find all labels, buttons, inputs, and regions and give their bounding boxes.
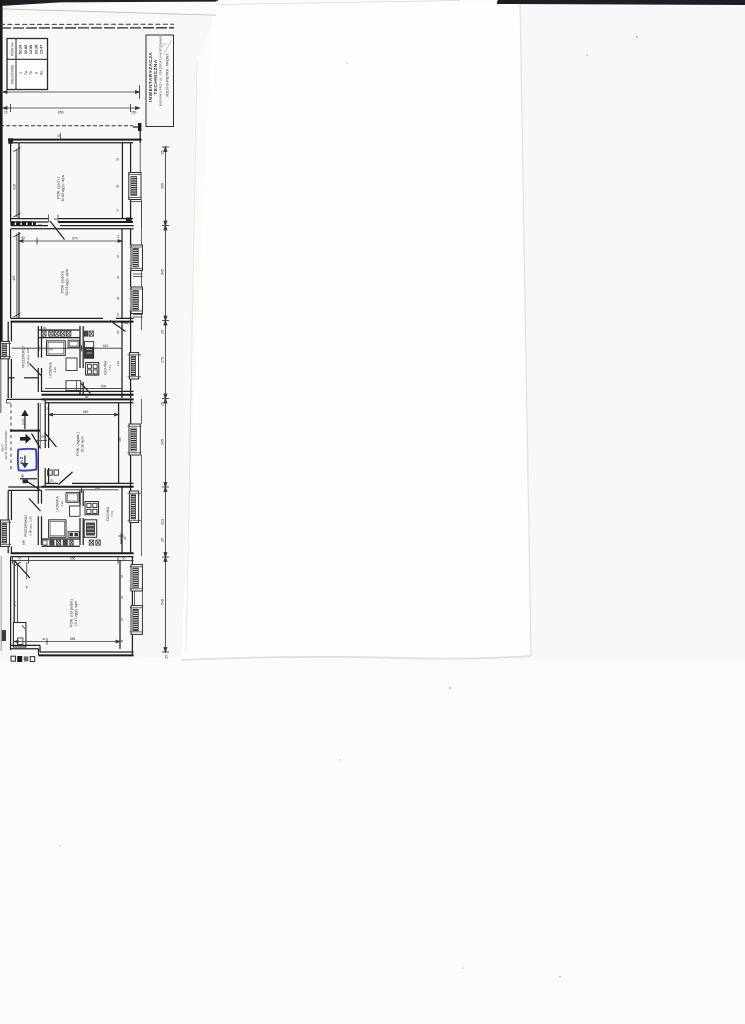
svg-text:7b: 7b — [29, 71, 33, 75]
svg-text:25: 25 — [161, 402, 165, 406]
svg-text:63: 63 — [116, 275, 120, 279]
svg-text:12: 12 — [116, 234, 120, 238]
svg-text:97: 97 — [116, 254, 120, 258]
svg-text:po17: po17 — [21, 418, 25, 425]
svg-text:548: 548 — [161, 599, 165, 605]
svg-text:473: 473 — [13, 601, 17, 607]
svg-text:7.61: 7.61 — [110, 511, 114, 517]
svg-text:25: 25 — [50, 478, 54, 482]
svg-text:13.47 zg(p). wym.: 13.47 zg(p). wym. — [74, 600, 78, 626]
svg-text:20.38: 20.38 — [34, 45, 38, 54]
svg-text:70: 70 — [18, 557, 22, 561]
svg-text:545: 545 — [161, 269, 165, 275]
svg-text:30: 30 — [122, 557, 126, 561]
svg-text:5.80 wys. 3.05: 5.80 wys. 3.05 — [28, 516, 32, 536]
svg-text:RZUT III PIETRA - FRONT: RZUT III PIETRA - FRONT — [166, 53, 170, 97]
svg-text:97: 97 — [120, 574, 124, 578]
svg-text:15: 15 — [4, 111, 8, 115]
svg-text:850: 850 — [58, 111, 64, 115]
svg-text:8a: 8a — [40, 71, 44, 75]
svg-text:7.61: 7.61 — [108, 365, 112, 371]
svg-text:30.85: 30.85 — [24, 45, 28, 54]
svg-text:150: 150 — [131, 111, 137, 115]
svg-text:25: 25 — [161, 151, 165, 155]
svg-text:POK. (od podw.): POK. (od podw.) — [70, 598, 74, 627]
svg-text:POK. (zach.): POK. (zach.) — [57, 176, 61, 198]
svg-text:1/2 KL.SCHODOWEJ: 1/2 KL.SCHODOWEJ — [4, 430, 8, 460]
svg-text:85: 85 — [21, 474, 25, 478]
svg-text:97: 97 — [120, 617, 124, 621]
svg-text:123: 123 — [161, 519, 165, 525]
svg-text:556: 556 — [70, 557, 76, 561]
svg-text:25: 25 — [116, 330, 120, 334]
svg-text:25: 25 — [161, 330, 165, 334]
svg-text:35: 35 — [116, 157, 120, 161]
svg-text:13.47: 13.47 — [40, 45, 44, 54]
svg-text:30x17: 30x17 — [0, 444, 4, 452]
svg-text:20: 20 — [161, 538, 165, 542]
svg-text:318: 318 — [12, 184, 16, 190]
svg-text:25: 25 — [46, 406, 50, 410]
svg-text:52.24: 52.24 — [19, 44, 23, 54]
svg-text:4.30: 4.30 — [53, 367, 57, 373]
svg-text:63: 63 — [120, 595, 124, 599]
svg-text:98: 98 — [116, 184, 120, 188]
svg-text:52.24 zg(p). wym.: 52.24 zg(p). wym. — [65, 268, 69, 295]
svg-text:5.80 wys. 3.05: 5.80 wys. 3.05 — [26, 347, 30, 367]
svg-text:600: 600 — [101, 385, 107, 389]
svg-text:m 2: m 2 — [19, 456, 24, 464]
svg-text:10: 10 — [116, 312, 120, 316]
svg-text:130: 130 — [116, 361, 120, 366]
svg-text:25: 25 — [57, 133, 61, 137]
svg-text:25: 25 — [123, 536, 127, 540]
svg-text:12.55: 12.55 — [29, 45, 33, 54]
svg-text:574: 574 — [72, 236, 78, 240]
svg-text:MIESZKANIE: MIESZKANIE — [11, 65, 15, 84]
svg-text:90: 90 — [43, 326, 47, 330]
svg-text:15: 15 — [165, 655, 169, 659]
svg-text:20.38 wym.: 20.38 wym. — [80, 435, 84, 452]
svg-text:40: 40 — [42, 637, 46, 641]
svg-text:345: 345 — [161, 439, 165, 445]
svg-text:585: 585 — [70, 637, 76, 641]
svg-text:170: 170 — [161, 357, 165, 363]
svg-text:345: 345 — [118, 437, 122, 442]
svg-text:540: 540 — [83, 410, 89, 414]
svg-text:595: 595 — [95, 486, 101, 490]
svg-text:465: 465 — [12, 275, 16, 281]
svg-text:30.85 zg(p). wym.: 30.85 zg(p). wym. — [61, 174, 65, 201]
svg-text:610: 610 — [103, 344, 109, 348]
svg-text:POW./m²: POW./m² — [11, 41, 15, 56]
svg-text:8: 8 — [34, 72, 38, 74]
svg-text:37: 37 — [116, 208, 120, 212]
svg-text:POK. (sypial.): POK. (sypial.) — [76, 432, 80, 456]
svg-text:80: 80 — [22, 236, 26, 240]
svg-text:350: 350 — [161, 183, 165, 189]
svg-text:7a: 7a — [24, 71, 28, 75]
svg-text:1: 1 — [19, 72, 23, 74]
svg-text:4.30: 4.30 — [60, 501, 64, 507]
svg-text:90: 90 — [54, 217, 58, 221]
svg-text:POK. (salon): POK. (salon) — [61, 270, 65, 292]
svg-text:98: 98 — [116, 296, 120, 300]
svg-text:38: 38 — [120, 639, 124, 643]
svg-text:100: 100 — [22, 540, 26, 545]
